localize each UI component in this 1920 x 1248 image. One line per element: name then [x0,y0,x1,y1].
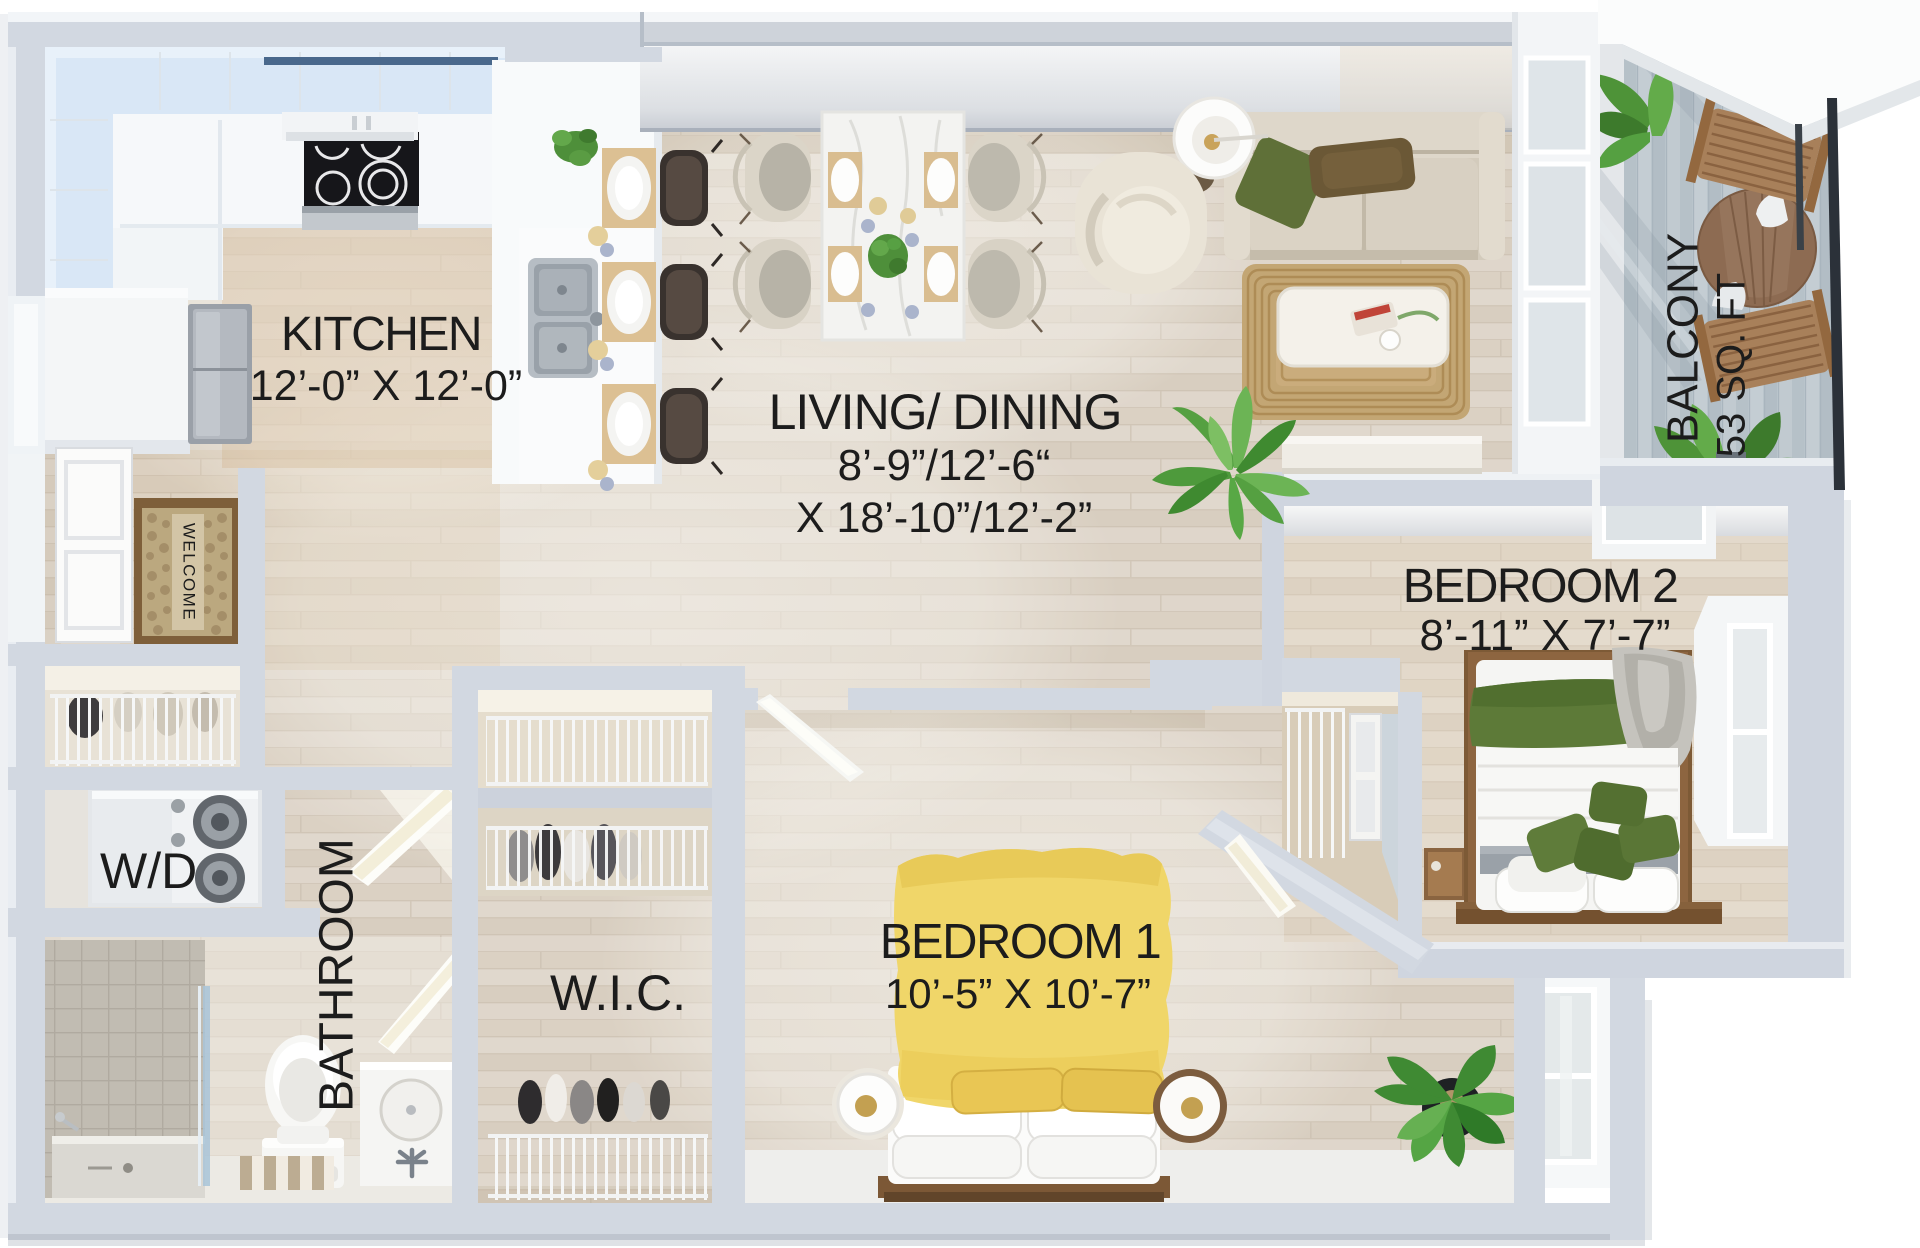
svg-text:X 18’-10”/12’-2”: X 18’-10”/12’-2” [796,494,1092,542]
svg-text:53 SQ. FT: 53 SQ. FT [1710,273,1754,458]
svg-text:8’-11” X 7’-7”: 8’-11” X 7’-7” [1419,611,1670,660]
svg-text:12’-0” X 12’-0”: 12’-0” X 12’-0” [250,362,522,410]
svg-text:BEDROOM 1: BEDROOM 1 [880,915,1161,969]
svg-text:LIVING/ DINING: LIVING/ DINING [769,384,1122,440]
svg-text:10’-5” X 10’-7”: 10’-5” X 10’-7” [885,970,1151,1017]
svg-text:BALCONY: BALCONY [1659,233,1708,443]
svg-text:KITCHEN: KITCHEN [281,308,481,361]
svg-text:W.I.C.: W.I.C. [550,965,686,1021]
svg-text:BEDROOM 2: BEDROOM 2 [1403,560,1678,613]
svg-text:WELCOME: WELCOME [180,523,199,621]
svg-text:W/D: W/D [100,843,197,899]
svg-text:BATHROOM: BATHROOM [311,838,364,1112]
svg-text:8’-9”/12’-6“: 8’-9”/12’-6“ [838,441,1051,490]
